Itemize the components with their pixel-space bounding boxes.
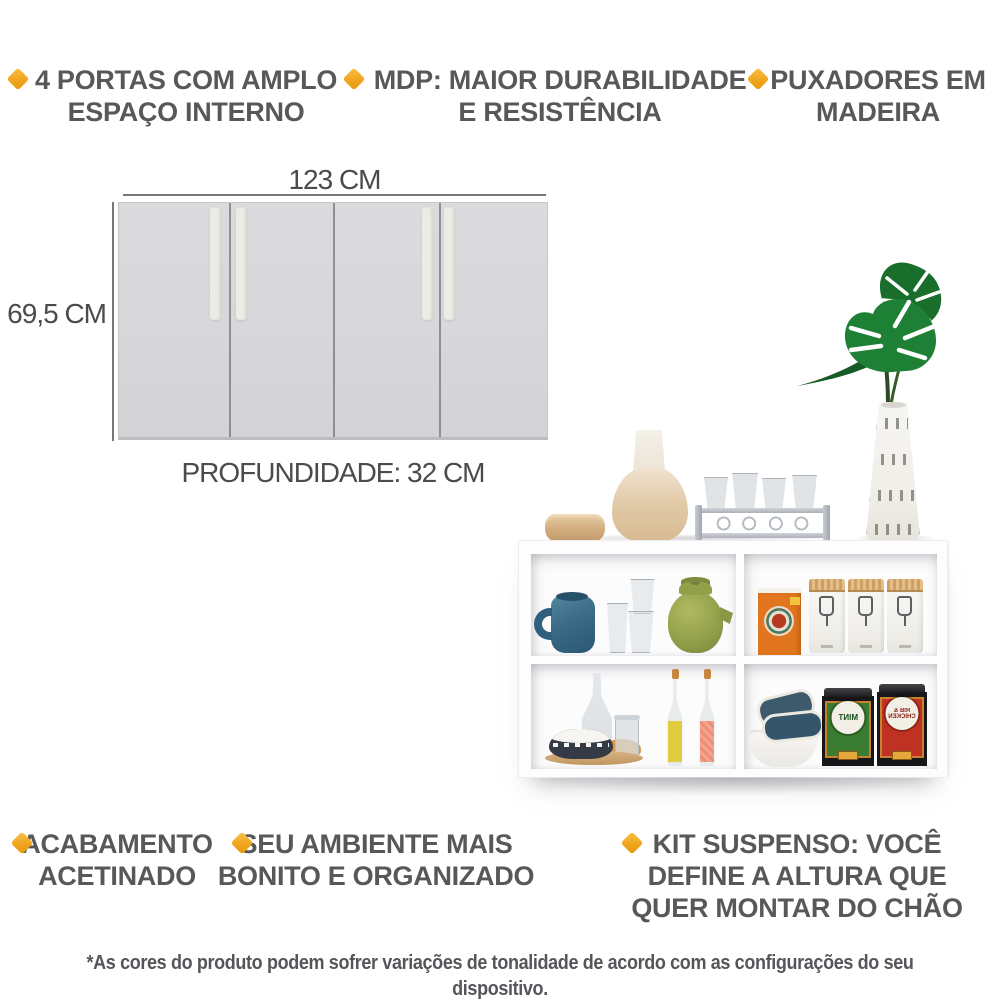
bamboo-lid	[809, 579, 845, 592]
door-divider	[439, 203, 441, 437]
glass-cup	[761, 478, 787, 511]
vase-dash-pattern	[864, 524, 920, 535]
tin-tag	[892, 751, 912, 760]
caddy-bar	[695, 508, 830, 513]
oil-bottle-yellow	[661, 672, 689, 766]
feature-line: 4 PORTAS COM AMPLO	[35, 64, 337, 96]
storage-canister	[887, 579, 923, 655]
canister-clamp	[858, 596, 873, 616]
green-teapot	[668, 591, 723, 653]
caddy-post	[823, 505, 830, 541]
diamond-bullet-icon	[621, 832, 644, 855]
storage-canister	[848, 579, 884, 655]
bamboo-lid	[848, 579, 884, 592]
rib-chicken-sauce-tin: RIB & CHICKEN	[877, 692, 927, 766]
vase-dash-pattern	[870, 454, 913, 465]
door-divider	[333, 203, 335, 437]
cabinet-photo: MINT RIB & CHICKEN	[518, 540, 948, 778]
feature-text-block: KIT SUSPENSO: VOCÊ DEFINE A ALTURA QUE Q…	[652, 828, 942, 924]
feature-suspended-kit: KIT SUSPENSO: VOCÊ DEFINE A ALTURA QUE Q…	[622, 828, 942, 924]
feature-doors: 4 PORTAS COM AMPLO ESPAÇO INTERNO	[8, 64, 334, 128]
metal-caddy	[695, 505, 830, 541]
tea-box	[758, 588, 801, 655]
cabinet-front-diagram	[118, 202, 548, 440]
canister-clamp	[819, 596, 834, 616]
bottle-liquid	[700, 721, 714, 762]
feature-line: ACABAMENTO	[21, 828, 213, 860]
diamond-bullet-icon	[7, 68, 30, 91]
caddy-post	[695, 505, 702, 541]
storage-canister	[809, 579, 845, 655]
tin-badge-text: RIB & CHICKEN	[886, 708, 919, 720]
vase-mouth	[881, 402, 906, 408]
ceramic-vase	[612, 466, 688, 541]
feature-line: QUER MONTAR DO CHÃO	[631, 892, 962, 924]
door-divider	[229, 203, 231, 437]
feature-handles: PUXADORES EM MADEIRA	[748, 64, 978, 128]
glass-cup	[791, 475, 818, 511]
height-dimension-label: 69,5 CM	[0, 298, 106, 330]
bottle-liquid	[668, 721, 682, 762]
glass-cup	[731, 473, 759, 511]
depth-dimension-label: PROFUNDIDADE: 32 CM	[118, 457, 548, 489]
glass-cup	[703, 477, 729, 511]
feature-line: MDP: MAIOR DURABILIDADE	[374, 64, 747, 96]
feature-text-block: 4 PORTAS COM AMPLO ESPAÇO INTERNO	[38, 64, 334, 128]
diamond-bullet-icon	[343, 68, 366, 91]
monstera-plant	[775, 252, 955, 412]
tin-tag	[838, 751, 858, 760]
feature-mdp: MDP: MAIOR DURABILIDADE E RESISTÊNCIA	[344, 64, 746, 128]
product-infographic: 4 PORTAS COM AMPLO ESPAÇO INTERNO MDP: M…	[0, 0, 1000, 1000]
feature-line: ESPAÇO INTERNO	[68, 96, 305, 128]
canister-clamp	[897, 596, 912, 616]
vase-dash-pattern	[874, 418, 908, 429]
canister-label	[821, 645, 833, 648]
door-handle	[236, 207, 247, 320]
wooden-box	[545, 514, 605, 541]
bottle-cork	[704, 669, 711, 679]
feature-line: SEU AMBIENTE MAIS	[240, 828, 513, 860]
width-dimension-line	[123, 194, 546, 196]
diamond-bullet-icon	[747, 68, 770, 91]
white-textured-vase	[858, 402, 928, 541]
caddy-bar	[695, 533, 830, 538]
feature-line: DEFINE A ALTURA QUE	[648, 860, 947, 892]
cabinet-shadow	[524, 777, 942, 795]
color-disclaimer: *As cores do produto podem sofrer variaç…	[50, 950, 950, 1000]
door-handle	[422, 207, 433, 320]
feature-text-block: MDP: MAIOR DURABILIDADE E RESISTÊNCIA	[374, 64, 746, 128]
feature-line: KIT SUSPENSO: VOCÊ	[653, 828, 942, 860]
feature-line: MADEIRA	[816, 96, 940, 128]
canister-label	[860, 645, 872, 648]
door-handle	[210, 207, 221, 320]
feature-text-block: PUXADORES EM MADEIRA	[778, 64, 978, 128]
canister-label	[899, 645, 911, 648]
feature-line: ACETINADO	[38, 860, 196, 892]
width-dimension-label: 123 CM	[123, 164, 546, 196]
feature-line: BONITO E ORGANIZADO	[218, 860, 534, 892]
bamboo-lid	[887, 579, 923, 592]
feature-line: E RESISTÊNCIA	[458, 96, 661, 128]
feature-ambiance: SEU AMBIENTE MAIS BONITO E ORGANIZADO	[232, 828, 490, 892]
tin-badge: MINT	[832, 701, 865, 734]
door-handle	[444, 207, 455, 320]
caddy-scrollwork	[707, 514, 818, 533]
feature-text-block: ACABAMENTO ACETINADO	[42, 828, 192, 892]
monstera-front-leaf	[845, 299, 936, 372]
tin-badge-text: MINT	[838, 714, 858, 722]
feature-text-block: SEU AMBIENTE MAIS BONITO E ORGANIZADO	[262, 828, 490, 892]
vase-dash-pattern	[867, 490, 917, 501]
scalloped-bowl	[549, 729, 613, 759]
tin-badge: RIB & CHICKEN	[886, 697, 919, 730]
bottle-cork	[672, 669, 679, 679]
feature-line: PUXADORES EM	[770, 64, 985, 96]
oil-bottle-pink	[693, 672, 721, 766]
height-dimension-line	[112, 202, 114, 441]
mint-sauce-tin: MINT	[822, 696, 874, 766]
blue-pitcher	[551, 596, 595, 653]
feature-finish: ACABAMENTO ACETINADO	[12, 828, 192, 892]
